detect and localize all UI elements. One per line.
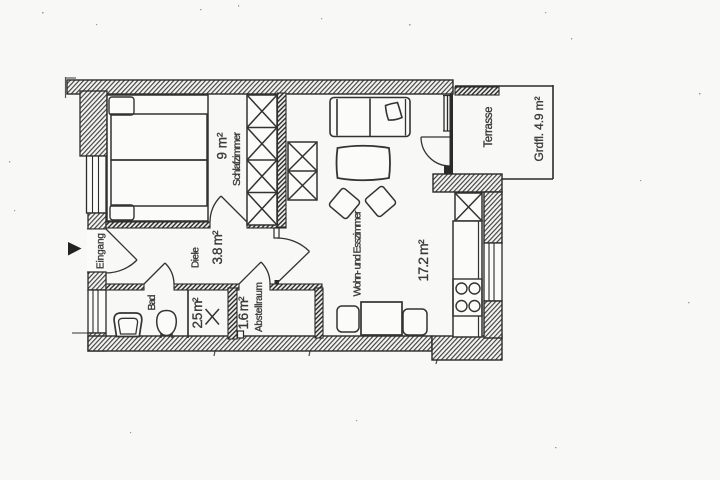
svg-text:17.2 m²: 17.2 m² [415, 239, 431, 281]
svg-text:Schlafzimmer: Schlafzimmer [231, 132, 243, 187]
svg-text:1.6 m²: 1.6 m² [236, 296, 251, 330]
svg-text:Grdfl. 4.9 m²: Grdfl. 4.9 m² [532, 97, 546, 162]
svg-text:3.8 m²: 3.8 m² [210, 230, 225, 265]
svg-text:Terrasse: Terrasse [483, 107, 495, 148]
svg-text:Wohn- und Esszimmer: Wohn- und Esszimmer [352, 210, 364, 297]
svg-text:Bad: Bad [146, 294, 158, 310]
svg-text:Abstellraum: Abstellraum [254, 282, 265, 332]
svg-text:9 m²: 9 m² [215, 132, 230, 160]
svg-text:Eingang: Eingang [96, 233, 107, 269]
svg-text:2.5 m²: 2.5 m² [190, 297, 205, 329]
svg-text:Diele: Diele [191, 247, 202, 268]
